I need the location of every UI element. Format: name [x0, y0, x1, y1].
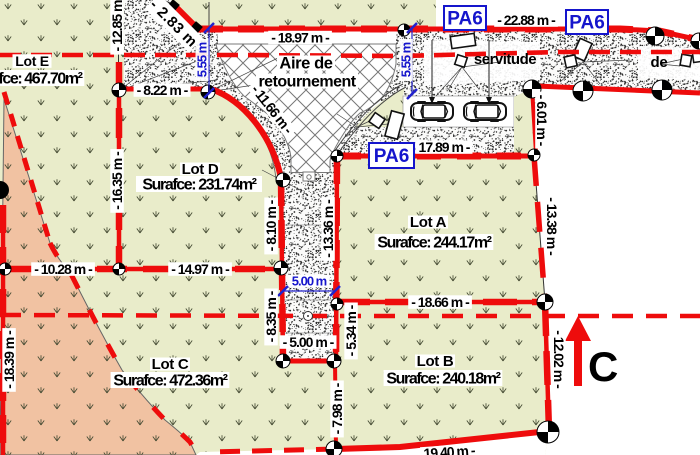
- svg-text:Surafce: 244.17m²: Surafce: 244.17m²: [377, 234, 491, 251]
- svg-text:- 16.35 m -: - 16.35 m -: [109, 151, 125, 210]
- svg-text:Surafce: 467.70m²: Surafce: 467.70m²: [0, 70, 83, 87]
- svg-text:- 10.28 m -: - 10.28 m -: [34, 261, 93, 277]
- svg-text:servitude: servitude: [474, 51, 536, 68]
- svg-text:- 12.85 m: - 12.85 m: [109, 0, 125, 51]
- svg-text:- 18.39 m -: - 18.39 m -: [1, 330, 17, 389]
- svg-text:C: C: [588, 343, 618, 390]
- svg-text:17.89 m -: 17.89 m -: [419, 139, 471, 155]
- svg-text:PA6: PA6: [569, 13, 605, 34]
- svg-text:5.55 m: 5.55 m: [194, 42, 209, 77]
- svg-text:Aire de: Aire de: [279, 55, 332, 73]
- svg-text:- 6.01 m -: - 6.01 m -: [534, 95, 550, 147]
- svg-text:- 8.10 m -: - 8.10 m -: [263, 199, 279, 251]
- svg-text:- 5.00 m -: - 5.00 m -: [283, 334, 335, 350]
- svg-text:- 22.88 m -: - 22.88 m -: [497, 12, 556, 28]
- svg-text:- 18.97 m -: - 18.97 m -: [271, 29, 330, 45]
- svg-text:- 14.97 m -: - 14.97 m -: [171, 261, 230, 277]
- svg-text:retournement: retournement: [258, 73, 356, 90]
- svg-text:5.00 m: 5.00 m: [292, 273, 327, 288]
- svg-text:- 18.66 m -: - 18.66 m -: [411, 294, 470, 310]
- svg-text:PA6: PA6: [374, 146, 410, 167]
- svg-text:Lot B: Lot B: [417, 353, 454, 370]
- svg-text:Surafce: 472.36m²: Surafce: 472.36m²: [113, 372, 227, 389]
- svg-text:Surafce: 240.18m²: Surafce: 240.18m²: [386, 370, 500, 387]
- svg-text:Lot A: Lot A: [410, 214, 447, 231]
- svg-text:Lot E: Lot E: [15, 53, 49, 69]
- svg-text:- 7.98 m -: - 7.98 m -: [329, 382, 345, 434]
- svg-text:de: de: [651, 54, 668, 71]
- svg-text:- 5.34 m -: - 5.34 m -: [343, 304, 359, 356]
- svg-text:- 12.02 m -: - 12.02 m -: [551, 330, 567, 389]
- svg-text:PA6: PA6: [447, 9, 483, 30]
- svg-text:Lot C: Lot C: [152, 356, 189, 373]
- svg-text:- 13.36 m -: - 13.36 m -: [320, 199, 336, 258]
- svg-text:5.55 m: 5.55 m: [398, 42, 413, 77]
- svg-text:Surafce: 231.74m²: Surafce: 231.74m²: [142, 176, 256, 193]
- svg-text:- 8.35 m -: - 8.35 m -: [263, 290, 279, 342]
- svg-text:- 13.38 m -: - 13.38 m -: [544, 197, 560, 256]
- svg-text:- 8.22 m -: - 8.22 m -: [137, 82, 189, 98]
